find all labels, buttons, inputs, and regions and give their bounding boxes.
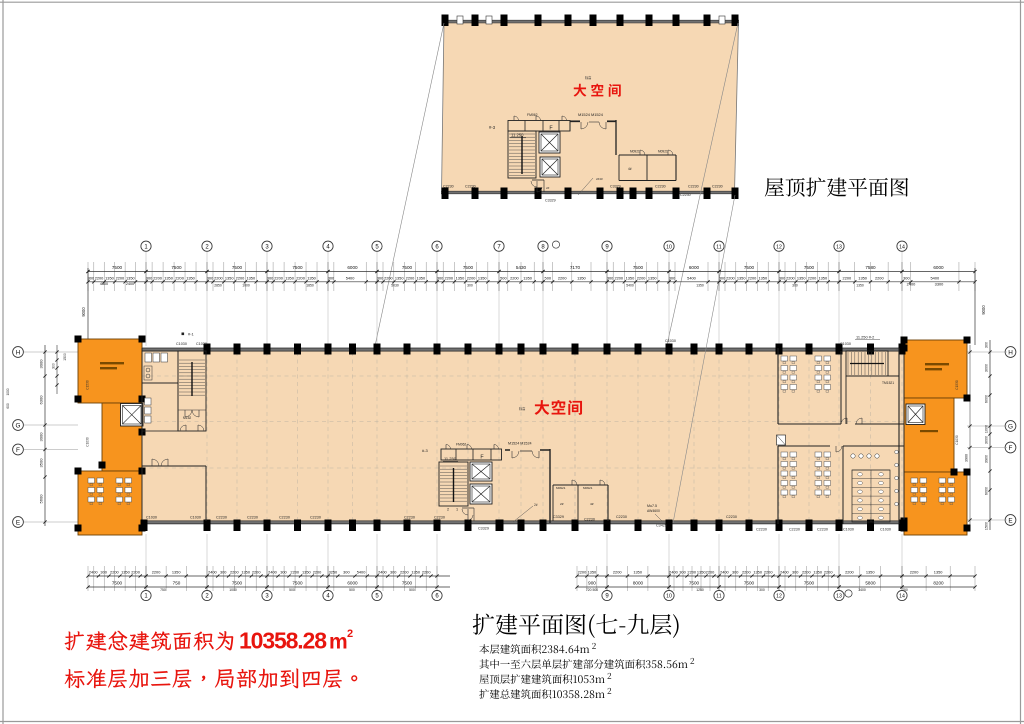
svg-text:H: H <box>1008 349 1013 356</box>
svg-text:1350: 1350 <box>246 276 255 281</box>
svg-text:11.250 #-2: 11.250 #-2 <box>856 335 874 340</box>
svg-text:2200: 2200 <box>95 276 104 281</box>
svg-text:2400: 2400 <box>126 282 134 286</box>
svg-text:1500: 1500 <box>63 353 67 361</box>
svg-text:3000: 3000 <box>985 364 989 372</box>
svg-text:2200: 2200 <box>116 276 125 281</box>
svg-text:1350: 1350 <box>411 569 420 574</box>
svg-text:9000: 9000 <box>981 305 986 315</box>
svg-text:1000: 1000 <box>985 425 989 433</box>
svg-text:C1030: C1030 <box>190 516 201 520</box>
svg-text:C2230: C2230 <box>216 516 227 520</box>
svg-text:11.250: 11.250 <box>444 456 457 461</box>
svg-text:2#: 2# <box>534 503 538 507</box>
svg-text:2200: 2200 <box>296 276 305 281</box>
svg-text:7500: 7500 <box>112 265 123 270</box>
svg-text:2200: 2200 <box>290 569 299 574</box>
svg-text:m: m <box>329 631 348 654</box>
svg-text:1850: 1850 <box>306 284 314 288</box>
svg-text:标高: 标高 <box>585 75 591 80</box>
svg-text:1350: 1350 <box>758 276 767 281</box>
svg-text:Mu7.5: Mu7.5 <box>647 504 657 508</box>
svg-text:C3329: C3329 <box>553 515 564 519</box>
svg-text:2200: 2200 <box>802 569 811 574</box>
svg-text:1350: 1350 <box>696 284 704 288</box>
svg-text:2400: 2400 <box>720 569 729 574</box>
svg-text:300: 300 <box>390 569 397 574</box>
svg-text:C2230: C2230 <box>310 516 321 520</box>
svg-text:300: 300 <box>280 569 287 574</box>
svg-text:3900: 3900 <box>965 454 969 462</box>
svg-text:14: 14 <box>899 594 905 600</box>
svg-text:750: 750 <box>173 581 181 586</box>
svg-text:500: 500 <box>349 588 355 592</box>
svg-text:300: 300 <box>207 276 214 281</box>
svg-text:C1530: C1530 <box>955 380 959 390</box>
svg-text:1000: 1000 <box>6 388 10 395</box>
svg-text:2200: 2200 <box>875 276 884 281</box>
svg-text:2400: 2400 <box>89 569 98 574</box>
svg-text:3000: 3000 <box>39 359 44 369</box>
svg-text:10358.28: 10358.28 <box>239 628 327 654</box>
svg-text:2200: 2200 <box>910 569 919 574</box>
svg-text:720 500: 720 500 <box>586 588 598 592</box>
svg-text:500: 500 <box>289 588 295 592</box>
svg-text:2200: 2200 <box>824 569 833 574</box>
svg-text:1350: 1350 <box>648 276 657 281</box>
svg-text:2400: 2400 <box>268 569 277 574</box>
svg-text:1350: 1350 <box>737 276 746 281</box>
svg-text:1350: 1350 <box>126 276 135 281</box>
svg-text:300: 300 <box>328 276 335 281</box>
svg-text:G: G <box>1008 423 1013 430</box>
svg-text:1350: 1350 <box>478 276 487 281</box>
svg-text:C2230: C2230 <box>789 528 800 532</box>
svg-text:7500: 7500 <box>292 581 303 586</box>
svg-text:300: 300 <box>732 569 739 574</box>
svg-text:3900: 3900 <box>985 455 989 463</box>
svg-text:4#: 4# <box>590 502 594 506</box>
svg-text:2200: 2200 <box>764 569 773 574</box>
svg-text:1: 1 <box>456 508 458 512</box>
svg-text:FM062: FM062 <box>527 113 538 117</box>
svg-text:1350: 1350 <box>225 276 234 281</box>
svg-text:G: G <box>16 422 21 429</box>
svg-text:1350: 1350 <box>395 276 404 281</box>
svg-text:750: 750 <box>160 588 166 592</box>
svg-text:标高: 标高 <box>519 406 525 411</box>
svg-text:6000: 6000 <box>347 265 358 270</box>
svg-text:TM1521: TM1521 <box>882 381 894 385</box>
svg-text:2400: 2400 <box>907 282 916 287</box>
svg-text:7500: 7500 <box>804 581 815 586</box>
svg-text:1350: 1350 <box>416 276 425 281</box>
svg-text:2200: 2200 <box>131 569 140 574</box>
svg-text:600: 600 <box>6 403 10 409</box>
svg-text:10: 10 <box>666 594 672 600</box>
svg-text:7500: 7500 <box>171 265 182 270</box>
svg-text:300: 300 <box>267 276 274 281</box>
svg-text:C2230: C2230 <box>434 516 445 520</box>
svg-text:C1030: C1030 <box>880 528 891 532</box>
svg-text:2: 2 <box>347 628 353 640</box>
svg-text:1350: 1350 <box>856 284 864 288</box>
svg-text:C2230: C2230 <box>655 185 666 189</box>
svg-text:2200: 2200 <box>153 276 162 281</box>
svg-text:6000: 6000 <box>689 265 700 270</box>
svg-text:300: 300 <box>903 276 910 281</box>
svg-text:2: 2 <box>447 508 449 512</box>
svg-text:7500: 7500 <box>463 265 474 270</box>
svg-text:1350: 1350 <box>797 276 806 281</box>
svg-text:2200: 2200 <box>742 569 751 574</box>
svg-text:C1030: C1030 <box>955 435 959 445</box>
svg-text:2200: 2200 <box>578 569 587 574</box>
svg-text:C3329: C3329 <box>610 185 621 189</box>
svg-text:2400: 2400 <box>208 569 217 574</box>
svg-text:1350: 1350 <box>858 276 867 281</box>
svg-text:M0921: M0921 <box>556 486 566 490</box>
svg-text:2850: 2850 <box>214 284 222 288</box>
svg-text:C2230: C2230 <box>465 185 476 189</box>
svg-text:2200: 2200 <box>808 276 817 281</box>
svg-text:C1030: C1030 <box>196 342 207 346</box>
svg-text:#-3: #-3 <box>489 125 496 130</box>
svg-text:5800: 5800 <box>865 581 876 586</box>
svg-text:5030: 5030 <box>391 284 399 288</box>
svg-text:#-1: #-1 <box>188 332 195 337</box>
svg-text:14: 14 <box>899 244 905 250</box>
svg-text:12: 12 <box>776 594 782 600</box>
svg-text:300: 300 <box>52 363 56 369</box>
svg-text:C2230: C2230 <box>726 515 737 519</box>
svg-text:6000: 6000 <box>933 265 944 270</box>
svg-text:300: 300 <box>985 342 989 348</box>
svg-text:C1030: C1030 <box>665 339 676 343</box>
svg-text:10: 10 <box>666 244 672 250</box>
svg-text:5400: 5400 <box>687 276 696 281</box>
svg-text:1350: 1350 <box>588 569 597 574</box>
svg-text:7500: 7500 <box>402 265 413 270</box>
svg-text:C2230: C2230 <box>756 528 767 532</box>
svg-text:2200: 2200 <box>614 276 623 281</box>
svg-text:2400: 2400 <box>669 569 678 574</box>
svg-text:7500: 7500 <box>112 581 123 586</box>
svg-text:2200: 2200 <box>175 276 184 281</box>
svg-text:C1030: C1030 <box>176 342 187 346</box>
svg-text:FM062: FM062 <box>456 443 466 447</box>
svg-text:2200: 2200 <box>274 276 283 281</box>
svg-text:1500: 1500 <box>985 522 989 530</box>
svg-text:6000: 6000 <box>347 581 358 586</box>
svg-text:2200: 2200 <box>152 569 161 574</box>
svg-text:300: 300 <box>343 569 350 574</box>
svg-text:C2230: C2230 <box>279 516 290 520</box>
svg-text:C2230: C2230 <box>680 193 691 197</box>
svg-text:5400: 5400 <box>931 276 940 281</box>
svg-text:2200: 2200 <box>786 276 795 281</box>
svg-text:C2230: C2230 <box>616 515 627 519</box>
svg-text:3000: 3000 <box>39 432 44 442</box>
svg-text:AW4600: AW4600 <box>647 509 660 513</box>
svg-text:1350: 1350 <box>818 276 827 281</box>
svg-text:2200: 2200 <box>558 276 567 281</box>
svg-text:1350: 1350 <box>105 276 114 281</box>
svg-text:1350: 1350 <box>523 276 532 281</box>
svg-text:C1030: C1030 <box>843 528 854 532</box>
svg-text:300: 300 <box>792 569 799 574</box>
svg-text:C3425: C3425 <box>656 524 667 528</box>
svg-text:2200: 2200 <box>422 569 431 574</box>
svg-text:C2230: C2230 <box>247 516 258 520</box>
svg-text:4#: 4# <box>628 167 632 171</box>
svg-text:300: 300 <box>377 276 384 281</box>
svg-text:2400: 2400 <box>780 569 789 574</box>
svg-text:C1030: C1030 <box>86 437 90 447</box>
svg-text:500: 500 <box>500 276 507 281</box>
svg-text:300: 300 <box>220 569 227 574</box>
svg-text:2200: 2200 <box>843 276 852 281</box>
svg-text:9000: 9000 <box>81 307 86 317</box>
svg-text:2200: 2200 <box>313 569 322 574</box>
svg-text:M152: M152 <box>183 416 191 420</box>
svg-text:300: 300 <box>437 276 444 281</box>
svg-text:1350: 1350 <box>753 569 762 574</box>
svg-text:7500: 7500 <box>744 265 755 270</box>
svg-text:2#: 2# <box>560 502 564 506</box>
svg-text:8000: 8000 <box>633 581 644 586</box>
svg-text:2200: 2200 <box>236 276 245 281</box>
svg-text:1350: 1350 <box>934 569 943 574</box>
svg-text:M0921: M0921 <box>630 150 640 154</box>
svg-text:1350: 1350 <box>241 569 250 574</box>
svg-text:2200: 2200 <box>110 569 119 574</box>
svg-text:300: 300 <box>607 276 614 281</box>
svg-text:6000: 6000 <box>985 395 989 403</box>
svg-text:300: 300 <box>100 569 107 574</box>
svg-text:300: 300 <box>759 588 765 592</box>
svg-text:1350: 1350 <box>302 569 311 574</box>
svg-text:4800: 4800 <box>100 282 108 286</box>
svg-text:5600: 5600 <box>39 494 44 504</box>
svg-text:1350: 1350 <box>121 569 130 574</box>
svg-text:500: 500 <box>409 588 415 592</box>
svg-text:1350: 1350 <box>456 276 465 281</box>
svg-text:300: 300 <box>467 284 473 288</box>
svg-text:1350: 1350 <box>633 569 642 574</box>
svg-text:C1030: C1030 <box>146 516 157 520</box>
svg-text:2200: 2200 <box>230 569 239 574</box>
svg-text:1350: 1350 <box>186 276 195 281</box>
svg-text:6000: 6000 <box>985 487 989 495</box>
svg-text:900: 900 <box>588 581 596 586</box>
svg-text:7500: 7500 <box>689 581 700 586</box>
svg-text:1350: 1350 <box>172 569 181 574</box>
svg-text:5400: 5400 <box>357 569 366 574</box>
svg-text:2#4#: 2#4# <box>596 177 603 181</box>
svg-text:6300: 6300 <box>39 395 44 405</box>
svg-text:7580: 7580 <box>865 265 876 270</box>
svg-text:2200: 2200 <box>706 569 715 574</box>
svg-text:3500: 3500 <box>39 458 44 468</box>
svg-text:300: 300 <box>719 276 726 281</box>
svg-text:1250: 1250 <box>696 588 704 592</box>
svg-text:3300: 3300 <box>935 282 944 287</box>
svg-text:300: 300 <box>779 276 786 281</box>
svg-text:7500: 7500 <box>633 265 644 270</box>
svg-text:13: 13 <box>836 594 842 600</box>
svg-text:C3329: C3329 <box>478 527 489 531</box>
svg-text:1000: 1000 <box>242 284 250 288</box>
svg-text:E: E <box>1008 517 1012 524</box>
svg-text:2#: 2# <box>546 186 550 190</box>
svg-text:C2230: C2230 <box>584 518 595 522</box>
svg-text:2200: 2200 <box>384 276 393 281</box>
svg-text:C2230: C2230 <box>712 185 723 189</box>
svg-text:2200: 2200 <box>687 569 696 574</box>
svg-text:C3329: C3329 <box>545 199 556 203</box>
svg-text:7500: 7500 <box>232 581 243 586</box>
svg-text:C2230: C2230 <box>688 185 699 189</box>
svg-text:7500: 7500 <box>402 581 413 586</box>
svg-text:3000: 3000 <box>985 436 989 444</box>
svg-text:2200: 2200 <box>845 569 854 574</box>
svg-text:2200: 2200 <box>637 276 646 281</box>
svg-text:5400: 5400 <box>626 284 634 288</box>
svg-text:11: 11 <box>716 244 721 250</box>
svg-text:C1030: C1030 <box>840 342 851 346</box>
svg-text:M1524 M1524: M1524 M1524 <box>578 112 604 117</box>
svg-text:2400: 2400 <box>378 569 387 574</box>
svg-text:300: 300 <box>792 284 798 288</box>
svg-text:1350: 1350 <box>626 276 635 281</box>
svg-text:1350: 1350 <box>813 569 822 574</box>
svg-text:E: E <box>16 519 20 526</box>
svg-text:7170: 7170 <box>570 265 581 270</box>
svg-text:7500: 7500 <box>232 265 243 270</box>
svg-text:2200: 2200 <box>400 569 409 574</box>
svg-text:2200: 2200 <box>467 276 476 281</box>
svg-text:3250: 3250 <box>329 569 338 574</box>
svg-text:13: 13 <box>836 244 842 250</box>
svg-text:7500: 7500 <box>804 265 815 270</box>
svg-text:1000: 1000 <box>229 588 237 592</box>
svg-text:1350: 1350 <box>866 569 875 574</box>
svg-text:2200: 2200 <box>510 276 519 281</box>
svg-text:C1530: C1530 <box>86 380 90 390</box>
svg-text:2200: 2200 <box>613 569 622 574</box>
svg-text:1350: 1350 <box>307 276 316 281</box>
svg-text:C2230: C2230 <box>817 528 828 532</box>
svg-text:2200: 2200 <box>726 276 735 281</box>
svg-text:M0921: M0921 <box>658 150 668 154</box>
svg-text:1350: 1350 <box>285 276 294 281</box>
svg-text:C2230: C2230 <box>404 516 415 520</box>
svg-text:12: 12 <box>776 244 782 250</box>
svg-text:2200: 2200 <box>406 276 415 281</box>
svg-text:1350: 1350 <box>164 276 173 281</box>
svg-text:11.250: 11.250 <box>511 133 524 138</box>
svg-text:3400: 3400 <box>858 588 866 592</box>
svg-text:8200: 8200 <box>933 581 944 586</box>
svg-text:F: F <box>16 447 20 454</box>
svg-text:F: F <box>1009 445 1013 452</box>
svg-text:300: 300 <box>669 276 676 281</box>
svg-text:500: 500 <box>545 276 552 281</box>
svg-text:C2230: C2230 <box>443 185 454 189</box>
svg-text:5400: 5400 <box>346 276 355 281</box>
svg-text:300: 300 <box>679 569 686 574</box>
svg-text:M1524 M1524: M1524 M1524 <box>508 442 532 446</box>
svg-text:M0921: M0921 <box>583 486 593 490</box>
svg-text:H: H <box>16 349 21 356</box>
svg-text:1350: 1350 <box>577 276 586 281</box>
svg-text:300: 300 <box>146 276 153 281</box>
svg-text:7500: 7500 <box>292 265 303 270</box>
svg-text:2200: 2200 <box>252 569 261 574</box>
svg-text:5430: 5430 <box>516 265 527 270</box>
svg-text:11: 11 <box>716 594 721 600</box>
svg-text:2200: 2200 <box>444 276 453 281</box>
svg-text:2200: 2200 <box>214 276 223 281</box>
svg-text:2200: 2200 <box>748 276 757 281</box>
svg-text:7500: 7500 <box>744 581 755 586</box>
svg-text:#-3: #-3 <box>422 448 429 453</box>
